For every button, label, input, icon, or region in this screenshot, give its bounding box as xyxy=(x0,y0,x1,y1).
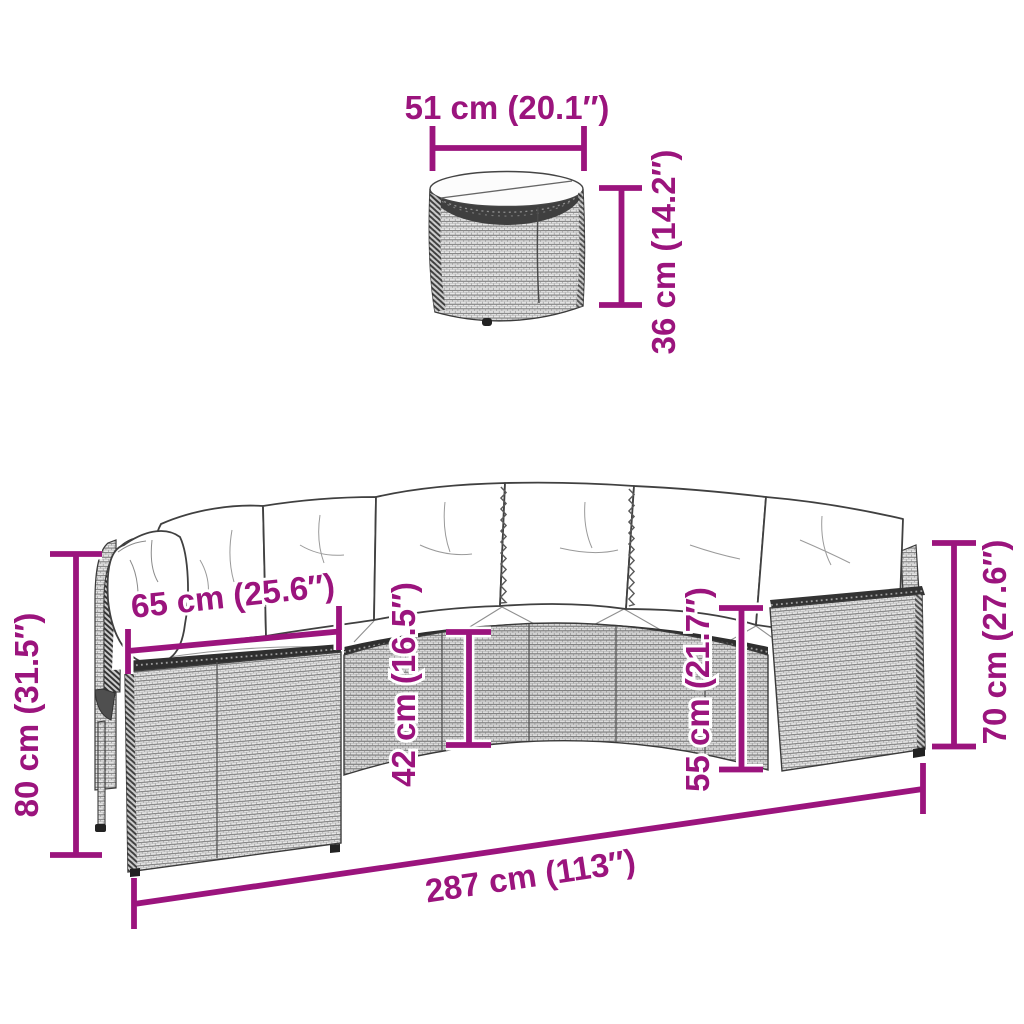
svg-text:36 cm (14.2″): 36 cm (14.2″) xyxy=(645,150,682,355)
svg-text:55 cm (21.7″): 55 cm (21.7″) xyxy=(679,587,716,792)
svg-text:70 cm (27.6″): 70 cm (27.6″) xyxy=(976,540,1013,745)
svg-text:42 cm (16.5″): 42 cm (16.5″) xyxy=(385,582,422,787)
svg-text:51 cm (20.1″): 51 cm (20.1″) xyxy=(405,89,610,126)
svg-text:80 cm (31.5″): 80 cm (31.5″) xyxy=(8,613,45,818)
